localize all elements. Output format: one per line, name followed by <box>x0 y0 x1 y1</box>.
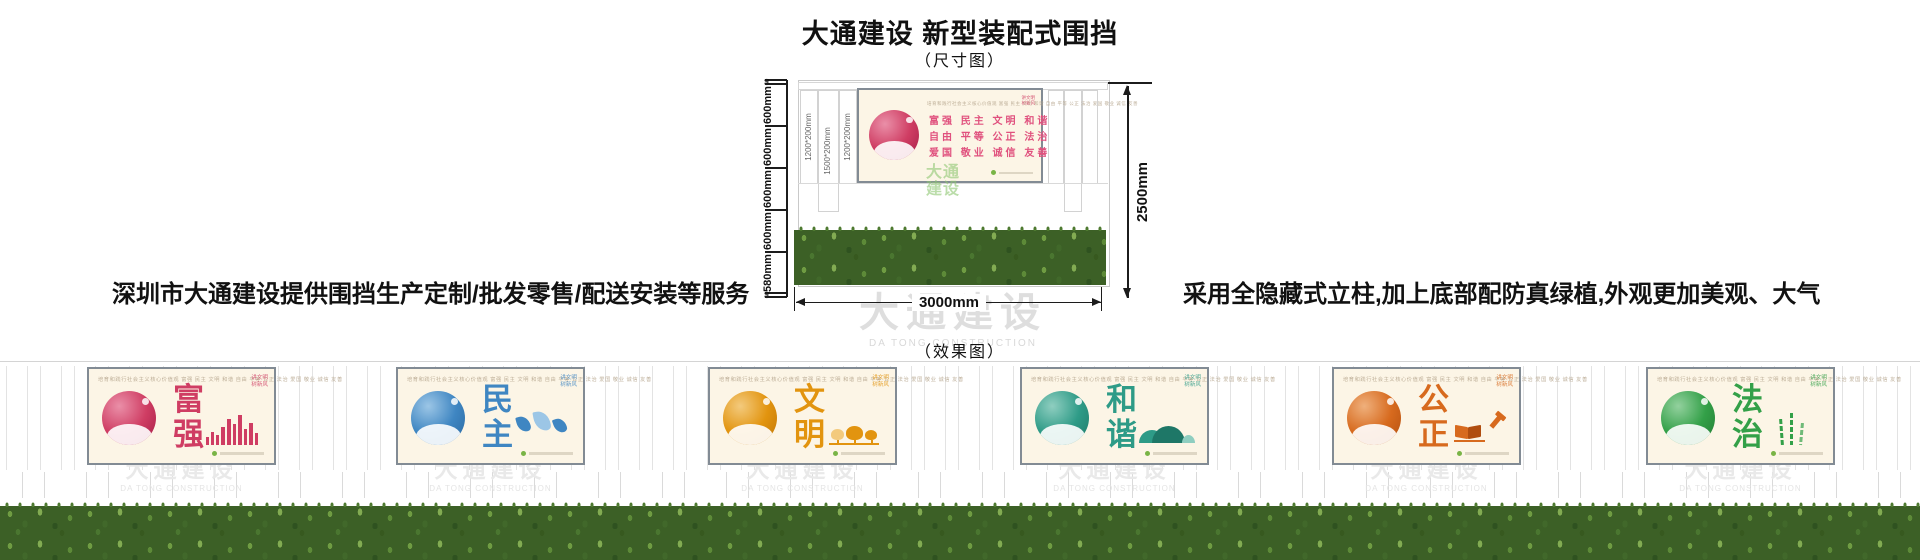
papercut-circle-art <box>102 391 156 445</box>
panel-corner-text: 讲文明树新风 <box>1810 374 1827 388</box>
panel-value-word: 公正 <box>1418 382 1449 452</box>
panel-header-text: 培育和践行社会主义核心价值观 富强 民主 文明 和谐 自由 平等 公正 法治 爱… <box>407 375 546 383</box>
cert-mark <box>1771 451 1823 456</box>
extension-line-left <box>794 287 795 311</box>
effect-panel: 培育和践行社会主义核心价值观 富强 民主 文明 和谐 自由 平等 公正 法治 爱… <box>1646 367 1835 465</box>
papercut-circle-art <box>869 110 919 160</box>
papercut-circle-art <box>723 391 777 445</box>
panel-motif-art <box>1139 411 1195 445</box>
feature-note: 采用全隐藏式立柱,加上底部配防真绿植,外观更加美观、大气 <box>1183 274 1820 309</box>
green-dot-icon <box>1457 451 1462 456</box>
green-dot-icon <box>833 451 838 456</box>
poster-page: 大通建设 新型装配式围挡 （尺寸图） 深圳市大通建设提供围挡生产定制/批发零售/… <box>0 0 1920 560</box>
banner-corner-text: 讲文明 树新风 <box>1021 95 1035 106</box>
panel-value-word: 法治 <box>1732 382 1763 452</box>
panel-header-text: 培育和践行社会主义核心价值观 富强 民主 文明 和谐 自由 平等 公正 法治 爱… <box>1657 375 1796 383</box>
height-ruler: 60600mm600mm600mm600mm580mm60 <box>760 80 788 297</box>
ruler-segment-label: 600mm <box>762 169 774 209</box>
cert-mark <box>212 451 264 456</box>
panel-motif-art <box>515 411 571 445</box>
panel-value-word: 富强 <box>173 382 204 452</box>
green-dot-icon <box>521 451 526 456</box>
cert-mark <box>1145 451 1197 456</box>
width-dimension: 3000mm <box>796 294 1102 312</box>
service-note: 深圳市大通建设提供围挡生产定制/批发零售/配送安装等服务 <box>112 274 749 309</box>
ruler-segment-label: 600mm <box>762 211 774 251</box>
panel-motif-art <box>1765 411 1821 445</box>
papercut-circle-art <box>1035 391 1089 445</box>
green-dot-icon <box>1145 451 1150 456</box>
panel-corner-text: 讲文明树新风 <box>1496 374 1513 388</box>
effect-view-caption: （效果图） <box>0 338 1920 362</box>
cert-mark <box>521 451 573 456</box>
panel-corner-text: 讲文明树新风 <box>560 374 577 388</box>
panel-value-word: 民主 <box>482 382 513 452</box>
papercut-circle-art <box>1661 391 1715 445</box>
panel-corner-text: 讲文明树新风 <box>251 374 268 388</box>
diagram-hedge <box>794 230 1106 285</box>
fence-feet <box>0 472 1920 498</box>
panel-value-word: 和谐 <box>1106 382 1137 452</box>
height-dimension: 2500mm <box>1135 157 1151 227</box>
arrow-up-icon <box>1123 85 1131 95</box>
ruler-segment-label: 600mm <box>762 85 774 125</box>
fence-board-left-3: 1200*200mm <box>839 90 857 184</box>
panel-header-text: 培育和践行社会主义核心价值观 富强 民主 文明 和谐 自由 平等 公正 法治 爱… <box>1031 375 1170 383</box>
panel-motif-art <box>827 411 883 445</box>
ruler-tick <box>765 296 787 298</box>
panel-header-text: 培育和践行社会主义核心价值观 富强 民主 文明 和谐 自由 平等 公正 法治 爱… <box>98 375 237 383</box>
ruler-segment-label: 600mm <box>762 127 774 167</box>
papercut-circle-art <box>1347 391 1401 445</box>
fence-board-left-1: 1200*200mm <box>800 90 818 184</box>
cert-mark <box>833 451 885 456</box>
hedge-strip <box>0 506 1920 560</box>
board-size-label: 1200*200mm <box>804 102 814 172</box>
green-watermark: 大通建设 <box>926 164 962 198</box>
arrow-down-icon <box>1123 288 1131 298</box>
panel-motif-art <box>206 411 262 445</box>
top-extension-tick <box>1108 82 1152 84</box>
effect-panel: 培育和践行社会主义核心价值观 富强 民主 文明 和谐 自由 平等 公正 法治 爱… <box>87 367 276 465</box>
panel-value-word: 文明 <box>794 382 825 452</box>
fence-board-right-2 <box>1064 90 1082 212</box>
page-title: 大通建设 新型装配式围挡 <box>0 12 1920 51</box>
panel-corner-text: 讲文明树新风 <box>1184 374 1201 388</box>
effect-panel: 培育和践行社会主义核心价值观 富强 民主 文明 和谐 自由 平等 公正 法治 爱… <box>396 367 585 465</box>
papercut-circle-art <box>411 391 465 445</box>
panel-header-text: 培育和践行社会主义核心价值观 富强 民主 文明 和谐 自由 平等 公正 法治 爱… <box>719 375 858 383</box>
effect-top-rail <box>0 361 1920 362</box>
green-dot-icon <box>212 451 217 456</box>
fence-board-left-2: 1500*200mm <box>818 90 839 212</box>
ruler-segment-label: 60 <box>762 275 774 315</box>
height-dimension-line <box>1127 86 1129 298</box>
panel-header-text: 培育和践行社会主义核心价值观 富强 民主 文明 和谐 自由 平等 公正 法治 爱… <box>1343 375 1482 383</box>
green-dot-icon <box>991 170 996 175</box>
board-size-label: 1500*200mm <box>823 116 833 186</box>
effect-panel: 培育和践行社会主义核心价值观 富强 民主 文明 和谐 自由 平等 公正 法治 爱… <box>708 367 897 465</box>
cert-mark <box>1457 451 1509 456</box>
panel-corner-text: 讲文明树新风 <box>872 374 889 388</box>
core-values-text: 富强 民主 文明 和谐 自由 平等 公正 法治 爱国 敬业 诚信 友善 <box>929 114 1050 162</box>
effect-panel: 培育和践行社会主义核心价值观 富强 民主 文明 和谐 自由 平等 公正 法治 爱… <box>1332 367 1521 465</box>
effect-panel: 培育和践行社会主义核心价值观 富强 民主 文明 和谐 自由 平等 公正 法治 爱… <box>1020 367 1209 465</box>
dimension-diagram-caption: （尺寸图） <box>0 47 1920 71</box>
panel-motif-art <box>1451 411 1507 445</box>
cert-mark <box>991 170 1033 175</box>
board-size-label: 1200*200mm <box>843 102 853 172</box>
green-dot-icon <box>1771 451 1776 456</box>
